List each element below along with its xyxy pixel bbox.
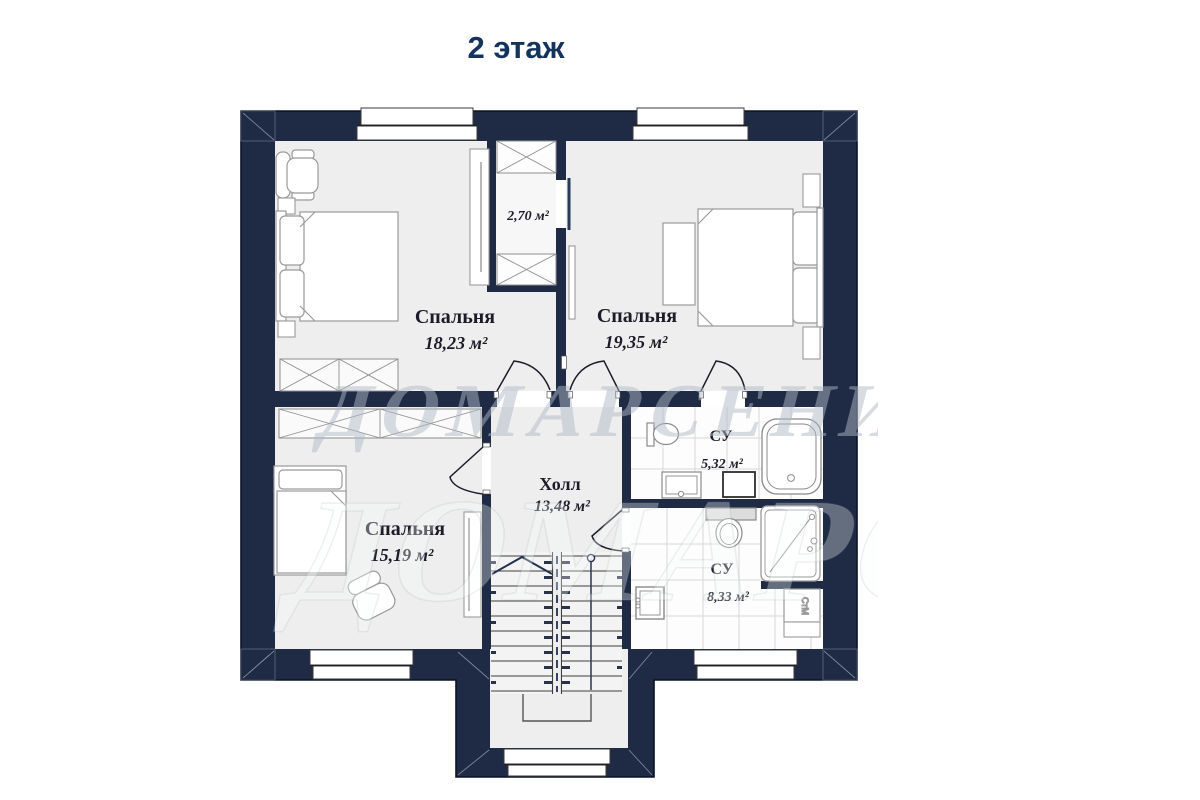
- svg-text:2 этаж: 2 этаж: [468, 30, 566, 65]
- svg-text:ДОМАРСЕНИ: ДОМАРСЕНИ: [270, 468, 1200, 632]
- svg-text:18,23 м²: 18,23 м²: [425, 333, 488, 353]
- svg-text:Спальня: Спальня: [415, 306, 495, 328]
- svg-text:ДОМАРСЕНИ: ДОМАРСЕНИ: [310, 368, 921, 453]
- svg-text:2,70 м²: 2,70 м²: [506, 209, 550, 224]
- svg-text:Спальня: Спальня: [597, 305, 677, 327]
- svg-text:19,35 м²: 19,35 м²: [605, 332, 668, 352]
